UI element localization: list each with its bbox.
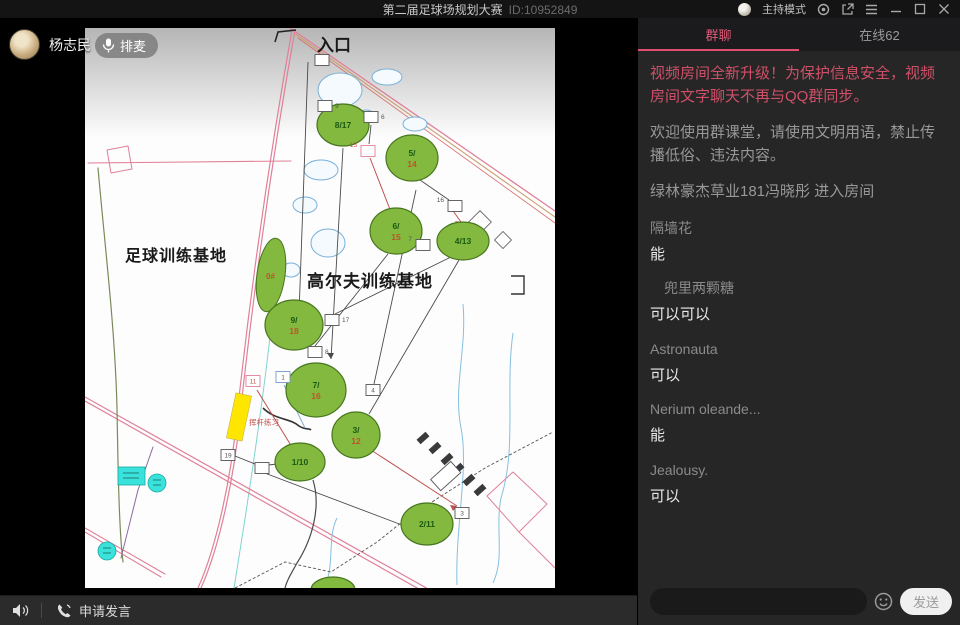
green-marker-label: 5/ bbox=[408, 148, 416, 158]
tee-marker-label: 9 bbox=[335, 103, 339, 110]
chat-nickname[interactable]: 兜里两颗糖 bbox=[650, 278, 948, 299]
driving-range-label: 挥杆练习 bbox=[249, 417, 279, 427]
maximize-button[interactable] bbox=[913, 3, 926, 16]
settings-icon[interactable] bbox=[817, 3, 830, 16]
chat-text: 能 bbox=[650, 244, 948, 267]
tee-marker bbox=[318, 101, 332, 112]
apply-speak-button[interactable]: 申请发言 bbox=[56, 601, 131, 620]
speaker-icon[interactable] bbox=[12, 603, 29, 618]
tee-marker bbox=[325, 315, 339, 326]
green-marker bbox=[265, 300, 323, 350]
chat-nickname[interactable]: 隔墙花 bbox=[650, 218, 948, 239]
popout-icon[interactable] bbox=[841, 3, 854, 16]
green-marker-label: 7/ bbox=[312, 380, 320, 390]
chat-text: 可以 bbox=[650, 486, 948, 509]
controls-divider bbox=[41, 603, 42, 618]
green-marker-label: 18 bbox=[289, 326, 299, 336]
send-button[interactable]: 发送 bbox=[900, 588, 952, 615]
tee-marker bbox=[315, 55, 329, 66]
chat-nickname[interactable]: Jealousy. bbox=[650, 460, 948, 481]
shared-slide: 挥杆练习 0# 8/175/146/154/139/187/161/103/12… bbox=[85, 28, 555, 588]
green-marker-label: 6/ bbox=[392, 221, 400, 231]
entrance-label: 入口 bbox=[317, 36, 351, 55]
chat-nickname[interactable]: Nerium oleande... bbox=[650, 399, 948, 420]
host-avatar[interactable] bbox=[738, 3, 751, 16]
golf-base-label: 高尔夫训练基地 bbox=[307, 271, 433, 291]
green-marker bbox=[332, 412, 380, 458]
tee-marker bbox=[448, 201, 462, 212]
chat-system-message: 欢迎使用群课堂，请使用文明用语，禁止传播低俗、违法内容。 bbox=[650, 122, 948, 167]
queue-mic-button[interactable]: 排麦 bbox=[95, 33, 158, 58]
green-marker-label: 1/10 bbox=[292, 457, 309, 467]
chat-tabs: 群聊在线62 bbox=[638, 18, 960, 51]
video-area: 挥杆练习 0# 8/175/146/154/139/187/161/103/12… bbox=[0, 18, 637, 625]
tee-marker-label: 7 bbox=[408, 236, 412, 243]
green-marker bbox=[370, 208, 422, 254]
green-marker-label: 9/ bbox=[290, 315, 298, 325]
green-marker-label: 15 bbox=[391, 232, 401, 242]
tee-marker-label: 3 bbox=[460, 511, 464, 518]
green-marker-label: 12 bbox=[351, 436, 361, 446]
presenter-info: 杨志民 bbox=[9, 29, 91, 60]
call-icon bbox=[56, 603, 72, 619]
video-stage: 挥杆练习 0# 8/175/146/154/139/187/161/103/12… bbox=[0, 18, 637, 595]
host-mode-label: 主持模式 bbox=[762, 1, 806, 17]
football-base-label: 足球训练基地 bbox=[125, 246, 227, 265]
chat-system-alert: 视频房间全新升级！为保护信息安全，视频房间文字聊天不再与QQ群同步。 bbox=[650, 63, 948, 108]
chat-tab-1[interactable]: 在线62 bbox=[799, 18, 960, 51]
chat-input-bar: 发送 bbox=[638, 583, 960, 625]
chat-panel: 群聊在线62 视频房间全新升级！为保护信息安全，视频房间文字聊天不再与QQ群同步… bbox=[637, 18, 960, 625]
queue-mic-label: 排麦 bbox=[120, 36, 146, 55]
chat-message: Nerium oleande...能 bbox=[650, 399, 948, 448]
chat-message: 兜里两颗糖可以可以 bbox=[650, 278, 948, 327]
green-marker-label: 4/13 bbox=[455, 236, 472, 246]
green-marker bbox=[286, 363, 346, 417]
minimize-button[interactable] bbox=[889, 3, 902, 16]
room-title: 第二届足球场规划大赛 bbox=[383, 3, 503, 17]
green-0-label: 0# bbox=[266, 272, 275, 281]
presenter-avatar[interactable] bbox=[9, 29, 40, 60]
chat-message: Astronauta可以 bbox=[650, 339, 948, 388]
tee-marker-label: 17 bbox=[342, 317, 350, 324]
close-button[interactable] bbox=[937, 3, 950, 16]
emoji-button[interactable] bbox=[874, 592, 893, 611]
menu-icon[interactable] bbox=[865, 3, 878, 16]
green-marker-label: 2/11 bbox=[419, 519, 435, 529]
bottom-controls: 申请发言 bbox=[0, 595, 637, 625]
tee-marker bbox=[416, 240, 430, 251]
tee-marker-label: 6 bbox=[381, 114, 385, 121]
chat-text: 可以 bbox=[650, 365, 948, 388]
chat-message: Jealousy.可以 bbox=[650, 460, 948, 509]
room-id: ID:10952849 bbox=[509, 3, 578, 17]
green-marker-label: 3/ bbox=[352, 425, 360, 435]
tee-marker-label: 1 bbox=[281, 375, 285, 382]
chat-message: 隔墙花能 bbox=[650, 218, 948, 267]
titlebar: 第二届足球场规划大赛ID:10952849 主持模式 bbox=[0, 0, 960, 18]
chat-input[interactable] bbox=[650, 588, 867, 615]
tee-marker-label: 8 bbox=[325, 349, 329, 356]
apply-speak-label: 申请发言 bbox=[79, 601, 131, 620]
chat-system-message: 绿林豪杰草业181冯晓彤 进入房间 bbox=[650, 181, 948, 204]
mic-icon bbox=[102, 38, 115, 53]
chat-text: 可以可以 bbox=[650, 304, 948, 327]
emoji-icon bbox=[874, 592, 893, 611]
green-marker bbox=[386, 135, 438, 181]
chat-tab-0[interactable]: 群聊 bbox=[638, 18, 799, 51]
chat-message-list[interactable]: 视频房间全新升级！为保护信息安全，视频房间文字聊天不再与QQ群同步。欢迎使用群课… bbox=[638, 51, 960, 583]
tee-marker-label: 4 bbox=[371, 388, 375, 395]
green-marker-label: 8/17 bbox=[335, 120, 352, 130]
green-marker-label: 16 bbox=[311, 391, 321, 401]
chat-nickname[interactable]: Astronauta bbox=[650, 339, 948, 360]
tee-marker-label: 19 bbox=[224, 453, 232, 460]
green-marker-label: 14 bbox=[407, 159, 417, 169]
tee-marker-label: 15 bbox=[350, 142, 358, 149]
chat-text: 能 bbox=[650, 425, 948, 448]
tee-marker bbox=[255, 463, 269, 474]
tee-marker bbox=[364, 112, 378, 123]
presenter-name: 杨志民 bbox=[49, 35, 91, 55]
tee-marker bbox=[361, 146, 375, 157]
tee-marker bbox=[308, 347, 322, 358]
course-map: 挥杆练习 0# 8/175/146/154/139/187/161/103/12… bbox=[85, 28, 555, 588]
tee-marker-label: 11 bbox=[250, 379, 257, 386]
tee-marker-label: 16 bbox=[437, 197, 445, 204]
